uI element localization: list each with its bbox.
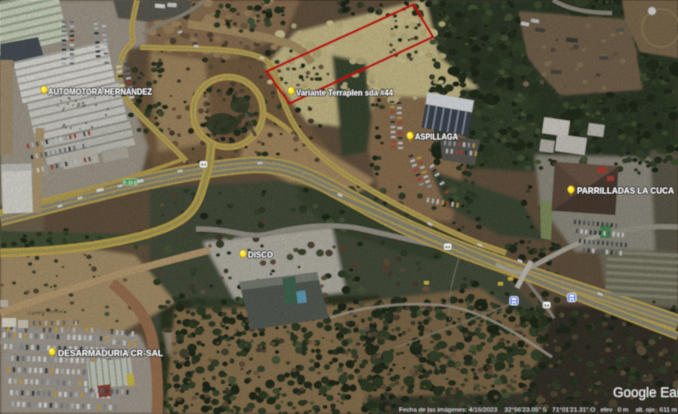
svg-text:64: 64	[201, 162, 207, 168]
svg-text:PARRILLADAS LA CUCA: PARRILLADAS LA CUCA	[577, 187, 674, 196]
svg-text:64: 64	[544, 303, 550, 309]
svg-text:DESARMADURIA CR-SAL: DESARMADURIA CR-SAL	[58, 349, 163, 358]
svg-text:DISCO: DISCO	[248, 251, 274, 260]
svg-text:Google Earth: Google Earth	[613, 385, 678, 400]
svg-text:F-30-E: F-30-E	[124, 180, 137, 185]
svg-text:64: 64	[445, 245, 451, 251]
svg-text:AUTOMOTORA HERNANDEZ: AUTOMOTORA HERNANDEZ	[48, 88, 152, 97]
svg-text:ASPILLAGA: ASPILLAGA	[415, 133, 458, 142]
svg-text:Fecha de las imágenes: 4/16/20: Fecha de las imágenes: 4/16/2023 32°56'2…	[399, 408, 677, 414]
svg-text:Variante Terraplen sda #44: Variante Terraplen sda #44	[296, 89, 393, 98]
